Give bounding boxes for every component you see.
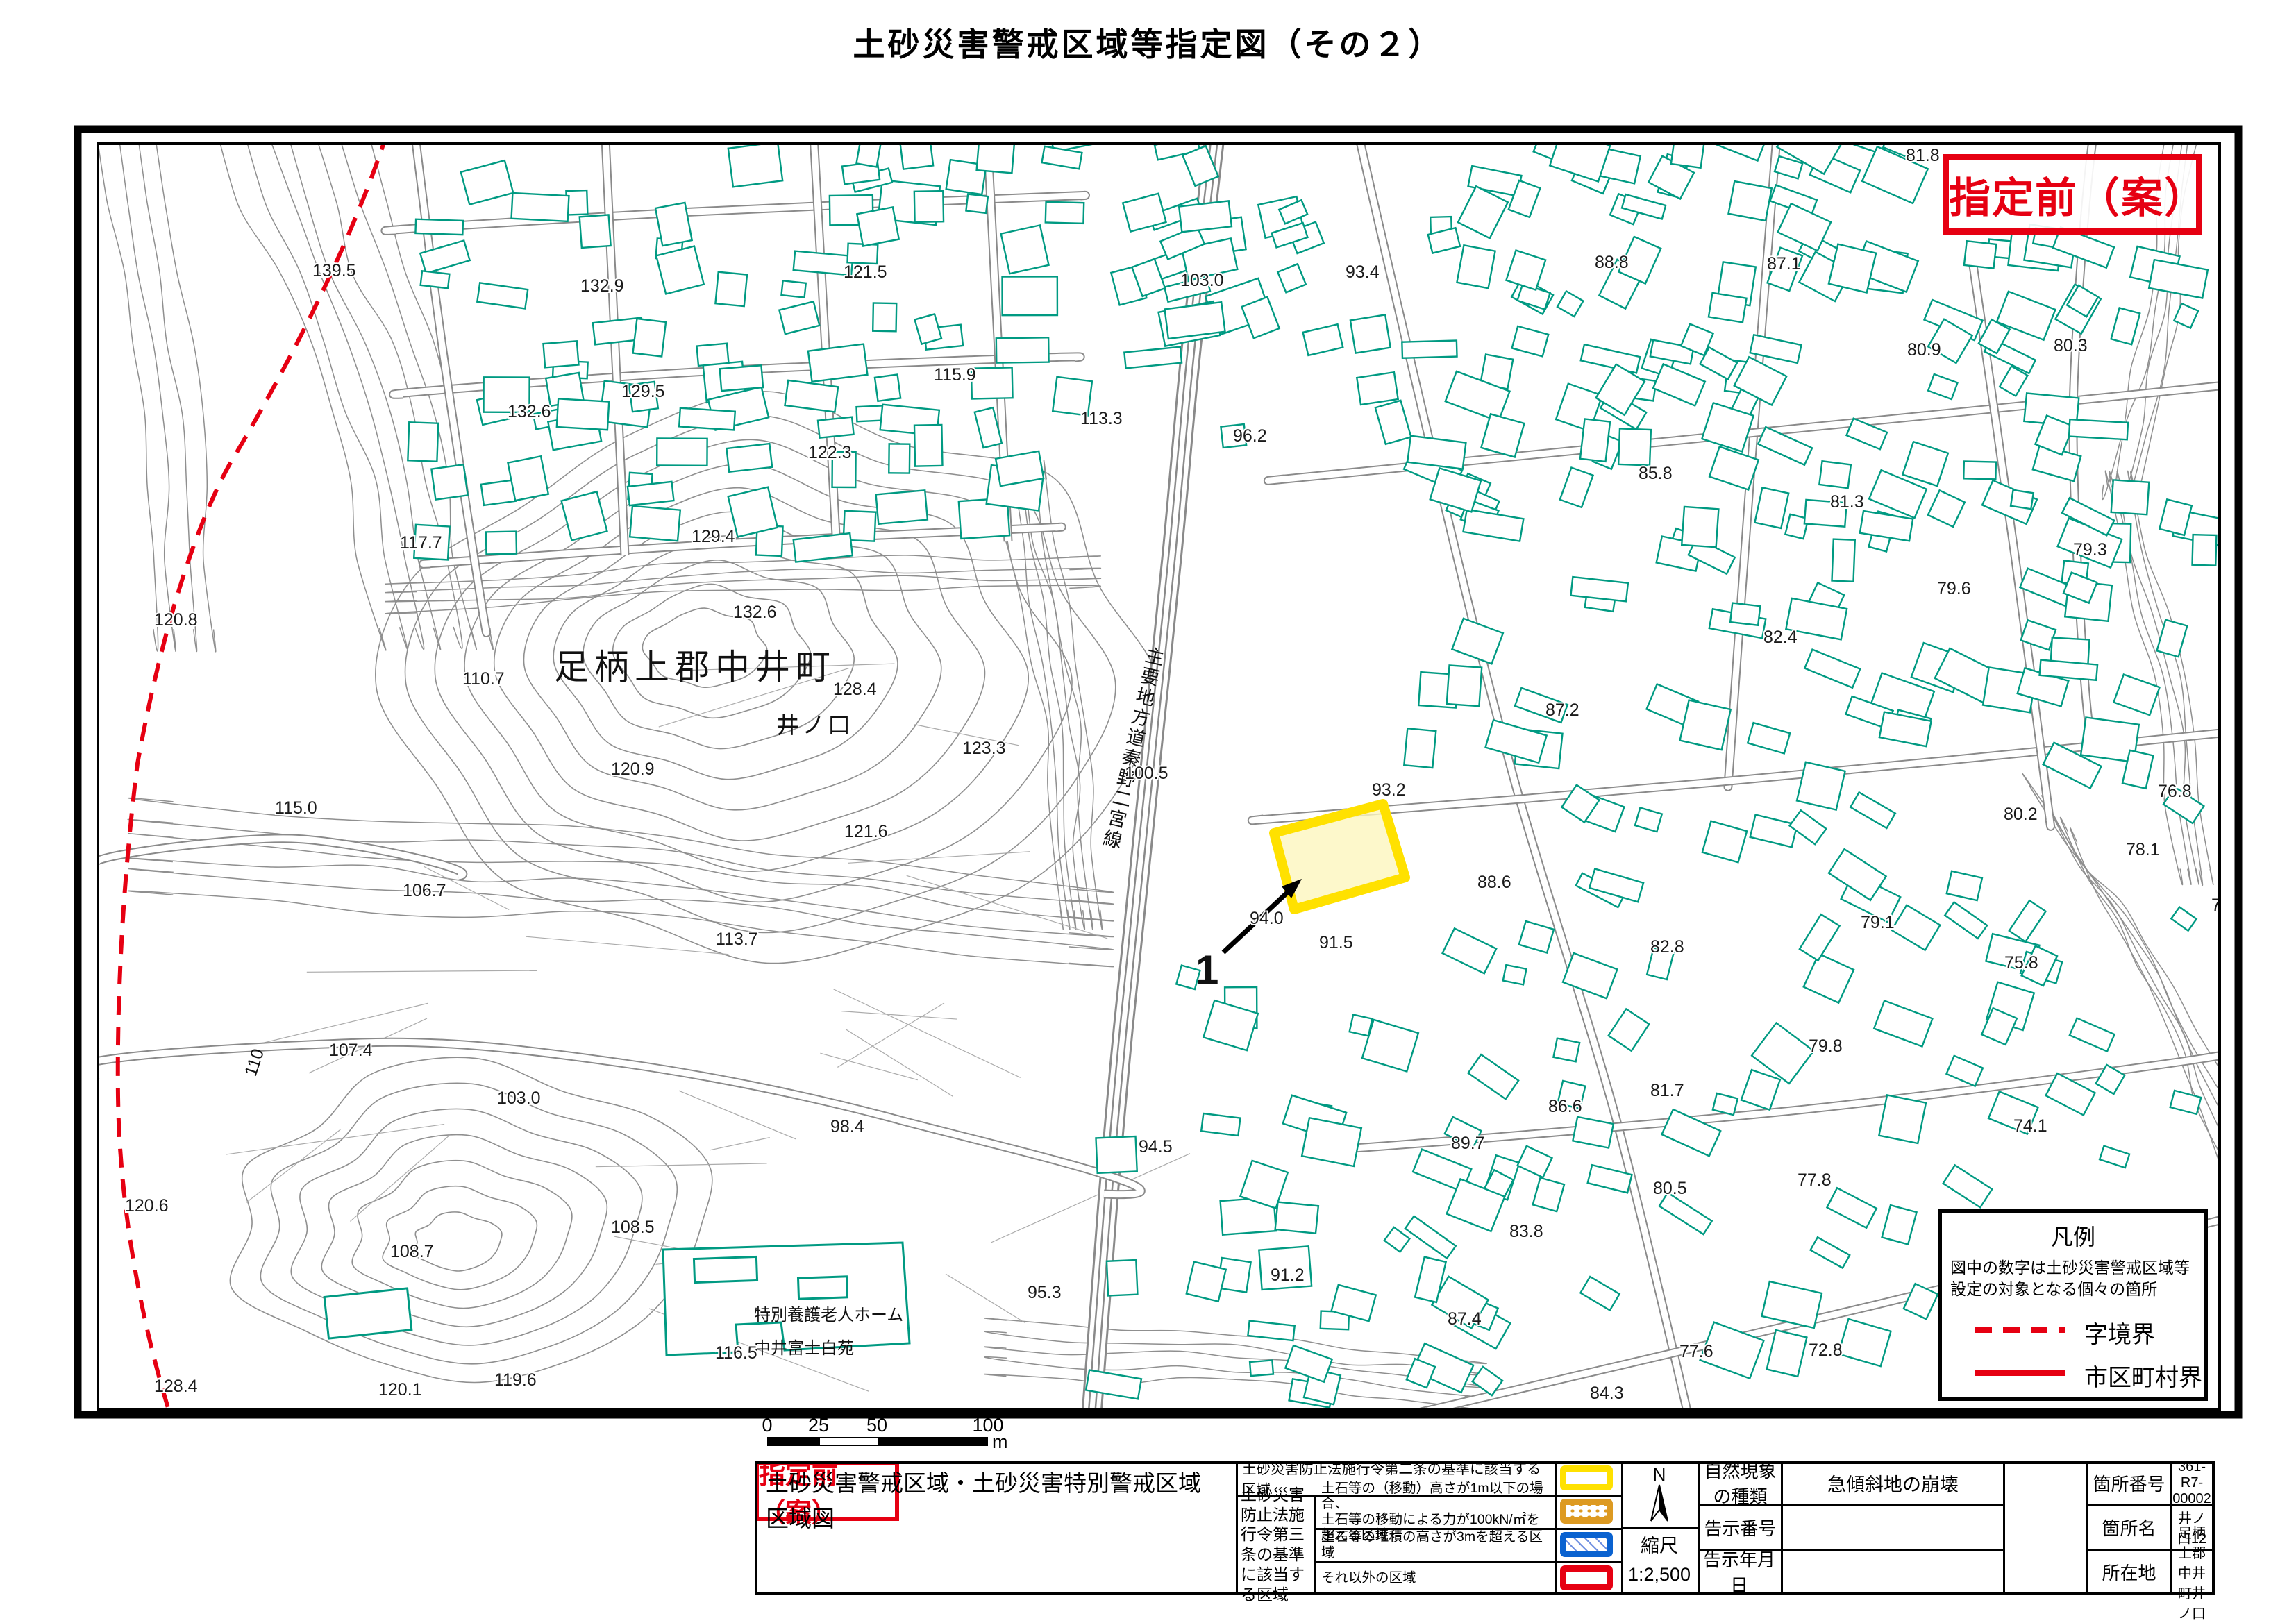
legend-box: 凡例 図中の数字は土砂災害警戒区域等 設定の対象となる個々の箇所 字境界 市区町… <box>1938 1209 2208 1401</box>
north-arrow-cell: N <box>1621 1461 1698 1527</box>
building <box>580 215 611 247</box>
site-number-label: 1 <box>1196 947 1218 993</box>
building <box>421 271 450 288</box>
spot-elevation: 77.6 <box>1679 1342 1713 1361</box>
field-value-natural-phenomenon: 急傾斜地の崩壊 <box>1783 1461 2003 1504</box>
building <box>914 191 944 222</box>
building <box>720 365 763 391</box>
building <box>1570 577 1627 601</box>
building <box>1560 468 1593 507</box>
building <box>486 532 517 555</box>
spot-elevation: 132.6 <box>508 402 551 421</box>
article3-criteria-label: 土砂災害防止法施行令第三条の基準に該当する区域 <box>1241 1495 1313 1595</box>
scale-tick: 25 <box>808 1415 829 1436</box>
field-label-notice-date: 告示年月日 <box>1698 1550 1781 1593</box>
building <box>481 480 516 505</box>
spot-elevation: 79.3 <box>2073 540 2107 560</box>
spot-elevation: 108.5 <box>611 1218 655 1237</box>
building <box>1302 1118 1361 1166</box>
building <box>1404 728 1436 768</box>
spot-elevation: 93.4 <box>1346 262 1380 282</box>
building <box>1375 401 1411 444</box>
building <box>1702 821 1747 862</box>
building <box>1001 225 1049 274</box>
building <box>2157 620 2188 657</box>
building <box>891 94 945 143</box>
designated-area <box>1223 804 1405 952</box>
building <box>1350 1015 1373 1036</box>
building <box>1405 1216 1456 1259</box>
spot-elevation: 86.6 <box>1548 1097 1582 1116</box>
building <box>2171 907 2196 931</box>
building <box>1827 1188 1876 1227</box>
spot-elevation: 82.8 <box>1650 937 1684 957</box>
building <box>971 367 1013 398</box>
spot-elevation: 95.3 <box>1028 1283 1062 1302</box>
spot-elevation: 82.4 <box>1763 628 1798 647</box>
building <box>1468 1054 1519 1099</box>
spot-elevation: 113.7 <box>716 930 758 949</box>
building <box>1042 146 1082 169</box>
facility-label-line2: 中井富士白苑 <box>754 1339 854 1358</box>
spot-elevation: 87.4 <box>1448 1309 1482 1329</box>
building <box>461 160 513 205</box>
building <box>857 207 898 246</box>
spot-elevation: 79.8 <box>1809 1036 1843 1056</box>
spot-elevation: 115.9 <box>934 365 976 385</box>
legend-item-label: 市区町村界 <box>2084 1359 2202 1393</box>
building <box>1709 293 1747 323</box>
building <box>1457 245 1495 288</box>
building <box>996 337 1049 362</box>
building <box>1800 914 1840 960</box>
spot-elevation: 103.0 <box>497 1088 541 1108</box>
building <box>1563 953 1617 998</box>
building <box>1248 1321 1294 1340</box>
building <box>1741 1070 1780 1110</box>
building <box>2170 1091 2201 1114</box>
spot-elevation: 88.8 <box>1595 253 1629 272</box>
scale-unit: m <box>992 1431 1008 1453</box>
building <box>696 344 728 366</box>
building <box>1653 364 1705 405</box>
spot-elevation: 76.8 <box>2158 782 2192 801</box>
building <box>1728 181 1771 221</box>
building <box>1860 511 1913 541</box>
building <box>1003 276 1057 315</box>
scale-bar-rule <box>767 1437 988 1446</box>
building <box>715 272 747 306</box>
building <box>2111 308 2140 345</box>
spot-elevation: 121.5 <box>844 262 887 282</box>
field-label-site-name: 箇所名 <box>2088 1506 2170 1549</box>
building <box>1790 810 1827 844</box>
article3-row-label: 土石等の堆積の高さが3mを超える区域 <box>1321 1529 1550 1561</box>
building <box>1580 419 1610 462</box>
spot-elevation: 110.7 <box>462 669 505 689</box>
spot-elevation: 94.0 <box>1250 909 1284 928</box>
building <box>543 341 578 367</box>
legend-item-label: 字境界 <box>2084 1315 2155 1349</box>
building <box>808 344 868 382</box>
building <box>1713 1093 1738 1115</box>
building <box>1430 468 1481 512</box>
legend-note-line1: 図中の数字は土砂災害警戒区域等 <box>1950 1257 2190 1279</box>
building <box>1201 1113 1240 1136</box>
building <box>1832 539 1854 582</box>
building <box>1285 1345 1332 1382</box>
building <box>408 422 438 461</box>
building <box>914 425 942 466</box>
field-label-location: 所在地 <box>2088 1550 2170 1593</box>
spot-elevation: 89.7 <box>1451 1134 1485 1153</box>
boundary-line-dashed <box>57 132 387 1408</box>
building <box>1573 1117 1614 1148</box>
building <box>1829 244 1876 293</box>
building <box>1963 461 1996 479</box>
building <box>1124 347 1182 369</box>
spot-elevation: 121.6 <box>844 822 888 841</box>
spot-elevation: 128.4 <box>154 1377 198 1396</box>
solid-red-line-icon <box>1975 1370 2065 1376</box>
building <box>1481 414 1524 457</box>
building <box>2069 419 2128 439</box>
field-label-site-number: 箇所番号 <box>2088 1461 2170 1504</box>
building <box>1947 871 1982 900</box>
building <box>726 444 772 472</box>
building <box>1804 650 1860 688</box>
article3-row-label: それ以外の区域 <box>1321 1563 1550 1594</box>
table-map-title-line1: 土砂災害警戒区域・土砂災害特別警戒区域 <box>766 1465 1224 1501</box>
spot-elevation: 100.5 <box>1125 764 1168 783</box>
building <box>1581 344 1640 373</box>
building <box>2046 1073 2095 1115</box>
red-area-swatch-icon <box>1560 1565 1613 1590</box>
spot-elevation: 80.2 <box>2004 805 2038 824</box>
building <box>873 303 896 331</box>
building <box>477 283 528 308</box>
building <box>785 380 838 412</box>
spot-elevation: 128.4 <box>833 680 877 699</box>
spot-elevation: 120.9 <box>611 759 655 779</box>
building <box>1928 490 1965 527</box>
building <box>415 219 463 235</box>
building <box>1748 723 1790 753</box>
district-label: 井ノ口 <box>776 712 853 738</box>
building <box>876 490 928 523</box>
spot-elevation: 133.6 <box>206 74 250 93</box>
spot-elevation: 78.1 <box>2126 840 2160 859</box>
building <box>657 438 707 465</box>
building <box>2100 1146 2129 1168</box>
spot-elevation: 113.3 <box>1080 409 1123 428</box>
building <box>1838 1319 1891 1366</box>
building <box>1609 1009 1650 1050</box>
building <box>1275 1202 1318 1234</box>
scale-value: 1:2,500 <box>1628 1561 1691 1589</box>
building <box>2192 535 2216 566</box>
building <box>1463 510 1523 541</box>
building <box>512 193 569 221</box>
building <box>1659 1193 1712 1234</box>
spot-elevation: 129.5 <box>621 382 665 401</box>
spot-elevation: 98.4 <box>830 1117 864 1136</box>
building <box>1767 1330 1807 1377</box>
spot-elevation: 115.0 <box>275 798 317 818</box>
building <box>655 203 692 246</box>
spot-elevation: 84.3 <box>1590 1384 1624 1403</box>
spot-elevation: 139.5 <box>312 261 356 280</box>
spot-elevation: 77.8 <box>1798 1170 1832 1190</box>
building <box>1402 341 1457 358</box>
spot-elevation: 85.8 <box>1639 464 1673 483</box>
spot-elevation: 87.2 <box>1545 700 1579 720</box>
building <box>1046 202 1084 224</box>
building <box>1553 1038 1579 1062</box>
building <box>899 133 933 169</box>
spot-elevation: 112.1 <box>1039 98 1081 117</box>
building <box>508 456 548 501</box>
building <box>2070 1018 2115 1052</box>
building <box>630 506 680 541</box>
building <box>1458 186 1508 238</box>
table-map-title-line2: 区域図 <box>766 1501 1224 1536</box>
scale-cell: 縮尺 1:2,500 <box>1621 1527 1698 1593</box>
building <box>1750 815 1798 848</box>
spot-elevation: 80.3 <box>2054 336 2088 355</box>
spot-elevation: 123.3 <box>962 739 1006 758</box>
building <box>1165 302 1225 339</box>
blue-hatched-area-swatch-icon <box>1560 1532 1613 1557</box>
field-value-location: 足柄上郡中井町井ノ口 <box>2172 1550 2212 1593</box>
building <box>1580 1277 1619 1311</box>
building <box>557 398 609 430</box>
building <box>1384 1227 1410 1252</box>
building <box>1882 1205 1917 1244</box>
building <box>1407 436 1466 469</box>
building <box>889 444 910 473</box>
building <box>1680 700 1731 750</box>
pre-designation-stamp: 指定前（案） <box>1943 154 2202 235</box>
building <box>906 91 930 130</box>
spot-elevation: 81.8 <box>1906 146 1940 165</box>
spot-elevation: 93.2 <box>1446 54 1480 74</box>
building <box>1797 762 1845 810</box>
spot-elevation: 116.5 <box>715 1343 757 1363</box>
building <box>1892 905 1941 950</box>
building <box>1357 372 1398 405</box>
spot-elevation: 120.8 <box>154 610 198 630</box>
building <box>1447 665 1482 706</box>
spot-elevation: 103.0 <box>1180 271 1224 290</box>
legend-note-line2: 設定の対象となる個々の箇所 <box>1950 1279 2190 1300</box>
building <box>1443 928 1497 973</box>
spot-elevation: 106.7 <box>403 881 446 900</box>
boundary-area-label: 境 <box>103 92 131 123</box>
spot-elevation: 91.5 <box>1319 933 1353 952</box>
spot-elevation: 94.5 <box>1139 1137 1173 1157</box>
building <box>1635 807 1662 832</box>
spot-elevation: 132.9 <box>580 276 624 296</box>
spot-elevation: 107.4 <box>329 1041 373 1060</box>
building <box>633 319 666 357</box>
spot-elevation: 120.6 <box>125 1196 169 1216</box>
building <box>1486 720 1547 763</box>
building <box>1879 1095 1926 1143</box>
info-table: 土砂災害警戒区域・土砂災害特別警戒区域 区域図 土砂災害防止法施行令第二条の基準… <box>755 1461 2215 1595</box>
building <box>656 246 704 294</box>
field-value-site-number: 361-R7-00002 <box>2172 1461 2212 1504</box>
building <box>1179 201 1232 232</box>
building <box>1096 1136 1137 1173</box>
spot-elevation: 88.6 <box>1477 873 1511 892</box>
legend-title: 凡例 <box>1942 1220 2204 1252</box>
building <box>1762 1281 1822 1328</box>
building <box>728 142 782 187</box>
building <box>977 131 1016 174</box>
spot-elevation: 80.9 <box>1907 340 1941 360</box>
building <box>2011 490 2034 509</box>
building <box>875 374 900 401</box>
building <box>1519 921 1554 953</box>
building <box>1187 1262 1226 1302</box>
building <box>1277 264 1306 292</box>
field-value-notice-date <box>1783 1550 2003 1593</box>
spot-elevation: 132.6 <box>733 603 777 622</box>
building <box>2009 900 2046 941</box>
spot-elevation: 87.1 <box>1767 254 1801 274</box>
building <box>1250 1361 1273 1377</box>
building <box>1850 792 1895 828</box>
orange-dotted-area-swatch-icon <box>1560 1499 1613 1524</box>
spot-elevation: 119.6 <box>494 1370 537 1390</box>
building <box>1804 954 1854 1003</box>
spot-elevation: 91.2 <box>1271 1265 1305 1285</box>
legend-note: 図中の数字は土砂災害警戒区域等 設定の対象となる個々の箇所 <box>1950 1257 2190 1300</box>
building <box>1533 1178 1564 1211</box>
building <box>1512 326 1549 356</box>
building <box>818 417 854 438</box>
spot-elevation: 74.1 <box>2013 1116 2047 1136</box>
building <box>1946 1056 1982 1086</box>
building <box>628 482 674 505</box>
scale-tick: 0 <box>762 1415 772 1436</box>
legend-item: 字境界 <box>1942 1315 2204 1343</box>
building <box>966 194 988 213</box>
building <box>1754 487 1788 528</box>
spot-elevation: 87.9 <box>1833 63 1867 83</box>
field-label-notice-number: 告示番号 <box>1700 1506 1781 1549</box>
spot-elevation: 122.3 <box>808 443 852 462</box>
spot-elevation: 120.1 <box>378 1380 422 1399</box>
building <box>1107 1260 1137 1296</box>
building <box>679 408 735 430</box>
building <box>431 464 467 499</box>
scale-bar: 0 25 50 100 m <box>759 1415 1009 1451</box>
building <box>781 280 805 297</box>
building <box>1557 291 1583 317</box>
building <box>1682 507 1718 547</box>
building <box>1811 1237 1850 1268</box>
spot-elevation: 72.8 <box>1809 1340 1843 1360</box>
building <box>1819 461 1851 488</box>
building <box>728 487 778 537</box>
spot-elevation: 96.2 <box>1233 426 1267 446</box>
spot-elevation: 128.3 <box>682 75 726 94</box>
spot-elevation: 81.7 <box>1650 1081 1684 1100</box>
field-value-notice-number <box>1783 1506 2003 1549</box>
building <box>2113 675 2159 716</box>
spot-elevation: 79.1 <box>1861 913 1895 932</box>
building <box>2111 480 2150 514</box>
building <box>1518 1146 1552 1177</box>
article3-row-label: 土石等の（移動）高さが1m以下の場合、 土石等の移動による力が100kN/㎡を超… <box>1321 1496 1550 1527</box>
spot-elevation: 83.8 <box>1509 1222 1543 1241</box>
spot-elevation: 80.5 <box>1653 1179 1687 1198</box>
spot-elevation: 93.2 <box>1372 780 1406 800</box>
road-line <box>69 1042 1141 1194</box>
facility-label-line1: 特別養護老人ホーム <box>754 1306 903 1325</box>
scale-tick: 50 <box>866 1415 887 1436</box>
building <box>1303 324 1343 355</box>
north-arrow-icon: N <box>1639 1464 1680 1525</box>
building <box>1710 116 1768 161</box>
building <box>1503 965 1527 984</box>
spot-elevation: 75.8 <box>2004 953 2038 973</box>
table-map-title: 土砂災害警戒区域・土砂災害特別警戒区域 区域図 <box>766 1465 1224 1542</box>
spot-elevation: 108.7 <box>390 1242 434 1261</box>
scale-label: 縮尺 <box>1641 1532 1678 1561</box>
building <box>1506 251 1545 290</box>
spot-elevation: 81.3 <box>1830 492 1864 512</box>
building <box>1550 130 1610 182</box>
svg-text:N: N <box>1653 1464 1666 1485</box>
building <box>1730 603 1760 625</box>
yellow-area-swatch-icon <box>1560 1465 1613 1490</box>
spot-elevation: 117.7 <box>400 533 442 553</box>
building <box>1964 241 1996 268</box>
spot-elevation: 79.6 <box>1937 579 1971 598</box>
building <box>914 314 941 344</box>
municipality-label: 足柄上郡中井町 <box>554 648 836 687</box>
building <box>779 301 819 334</box>
building <box>1902 442 1948 486</box>
pre-designation-stamp-text: 指定前（案） <box>1949 165 2196 225</box>
spot-elevation: 129.4 <box>692 527 735 546</box>
building <box>1452 619 1502 664</box>
building <box>1874 1001 1932 1047</box>
legend-item: 市区町村界 <box>1942 1359 2204 1386</box>
building <box>1945 902 1987 939</box>
building <box>1928 374 1957 399</box>
building <box>1350 314 1391 353</box>
field-label-natural-phenomenon: 自然現象の種類 <box>1700 1461 1781 1504</box>
dashed-red-line-icon <box>1975 1327 2065 1333</box>
building <box>1943 1165 1993 1207</box>
building <box>1618 428 1651 465</box>
designation-map-page: { "title": "土砂災害警戒区域等指定図（その２）", "stamp_t… <box>0 0 2296 1623</box>
